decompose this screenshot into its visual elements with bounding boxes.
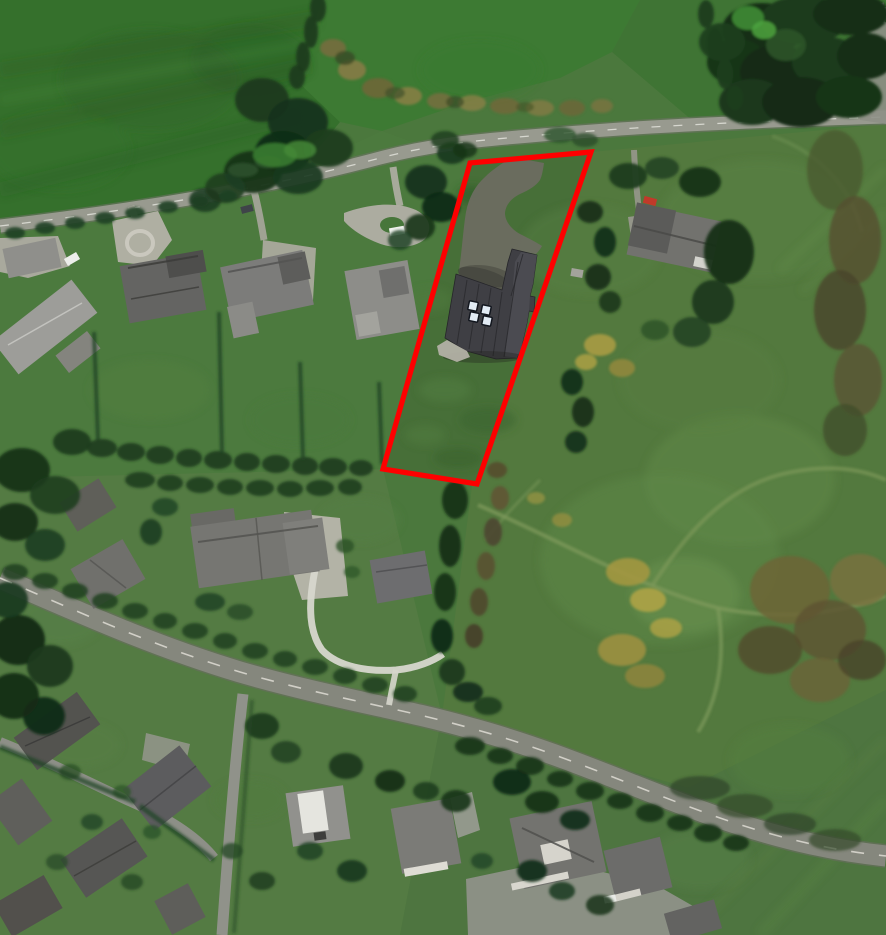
scrub-brown — [490, 98, 520, 114]
hedge-diag-below-site — [442, 481, 468, 519]
trees-road2-south — [493, 769, 531, 795]
hedgerow-below-site — [157, 475, 183, 491]
scrub-dark — [516, 102, 534, 112]
hedge-road2-south — [723, 835, 749, 851]
gorse — [609, 359, 635, 377]
scrub-hedge-west — [491, 486, 509, 510]
scrub-brown — [591, 99, 613, 113]
scrub-dark — [335, 51, 355, 65]
building-flat-white-roof — [297, 790, 328, 833]
hedgerow-mid — [146, 446, 174, 464]
hedge-diag-below-site — [439, 659, 465, 685]
mottle — [420, 40, 540, 100]
trees-road2-south — [525, 791, 559, 813]
bush-house-g — [336, 539, 354, 553]
hedge-road2-north — [242, 643, 268, 659]
hedgerow-mid — [292, 457, 318, 475]
scrub-road-north-se — [670, 776, 730, 800]
hedge-road2-north — [92, 593, 118, 609]
skylight — [482, 316, 493, 327]
trees-suburb — [413, 782, 439, 800]
trees-suburb — [337, 860, 367, 882]
hedge-site-east — [561, 369, 583, 395]
mottle-site — [419, 378, 471, 402]
hedgerow-mid — [117, 443, 145, 461]
hedgerow-mid — [176, 449, 202, 467]
trees-house-f — [195, 593, 225, 611]
hedge-road2-north — [62, 583, 88, 599]
trees-west-edge — [27, 645, 73, 687]
trees-suburb — [517, 860, 547, 882]
hedge-road2-south — [667, 815, 693, 831]
mottle-rough — [645, 415, 835, 545]
satellite-basemap — [0, 0, 886, 935]
trees-house-e — [641, 320, 669, 340]
hedge-road2-north — [182, 623, 208, 639]
hedge-road-top — [125, 207, 145, 219]
hedge-road2-south — [607, 793, 633, 809]
scrub-dark — [446, 96, 464, 108]
scrub-road-north-se — [809, 829, 861, 851]
hedge-road-top — [5, 227, 25, 239]
scrub-brown — [559, 100, 585, 116]
hedge-road2-north — [122, 603, 148, 619]
trees-site-west — [388, 230, 412, 250]
scrub-hedge-west — [477, 552, 495, 580]
hedge-site-east — [599, 291, 621, 313]
building-flat-unit — [314, 831, 327, 841]
trees-suburb — [297, 842, 323, 860]
hedgerow-below-site — [306, 480, 334, 496]
gorse — [606, 558, 650, 586]
house-f-right-wing — [283, 517, 330, 574]
skylight — [469, 312, 480, 323]
hedge-site-east — [585, 264, 611, 290]
house-d-light-wing — [355, 311, 380, 336]
hedgerow-below-site — [186, 477, 214, 493]
hedge-road2-north — [302, 659, 328, 675]
gorse — [552, 513, 572, 527]
hedge-road-top — [95, 212, 115, 224]
trees-house-e — [704, 220, 754, 284]
gorse — [650, 618, 682, 638]
hedge-road-top — [65, 217, 85, 229]
mottle-site — [434, 448, 482, 468]
scrub-band-east — [814, 270, 866, 350]
hedge-site-east — [594, 227, 616, 257]
hedgerow-below-site — [277, 481, 303, 497]
hedgerow-below-site — [125, 472, 155, 488]
house-c-dark-wing — [277, 251, 310, 284]
mottle-site — [405, 425, 445, 445]
bush-suburb — [143, 825, 161, 839]
hedge-road2-south — [487, 748, 513, 764]
trees-house-f — [152, 498, 178, 516]
trees-suburb — [549, 882, 575, 900]
hedge-road2-north — [32, 573, 58, 589]
bush-suburb — [46, 854, 68, 870]
hedge-road2-south — [636, 804, 664, 822]
hedge-road2-north — [2, 564, 28, 580]
hedge-road2-north — [153, 613, 177, 629]
scrub-se — [738, 626, 802, 674]
hedgerow-below-site — [217, 479, 243, 495]
hedge-road2-north — [333, 668, 357, 684]
mottle-se — [730, 725, 850, 795]
hedge-diag-topright — [707, 28, 723, 60]
scrub-road-north-se — [764, 813, 816, 835]
scrub-hedge-west — [465, 624, 483, 648]
trees-house-f — [227, 604, 253, 620]
trees-entrance — [453, 142, 477, 158]
trees-west-mid — [30, 476, 80, 514]
aerial-site-plan — [0, 0, 886, 935]
hedge-site-east — [565, 431, 587, 453]
hedgerow-mid — [262, 455, 290, 473]
hedgerow-mid — [87, 439, 117, 457]
trees-house-e — [673, 317, 711, 347]
trees-house-e — [609, 163, 647, 189]
hedgerow-below-site — [246, 480, 274, 496]
hedge-road2-north — [393, 686, 417, 702]
hedge-road2-south — [547, 771, 573, 787]
scrub-se — [838, 640, 886, 680]
gorse — [527, 492, 545, 504]
hedgerow-mid — [204, 451, 232, 469]
hedge-road-top — [191, 195, 209, 207]
skylight — [481, 305, 492, 316]
hedge-road2-south — [576, 782, 604, 800]
hedge-road-north — [228, 163, 258, 177]
hedgerow-mid — [319, 458, 347, 476]
scrub-hedge-west — [487, 462, 507, 478]
hedge-road2-south — [694, 824, 722, 842]
hedge-top-field — [289, 65, 305, 89]
mottle-suburb — [214, 780, 286, 820]
hedge-diag-topright — [727, 86, 743, 110]
hedge-diag-below-site — [453, 682, 483, 702]
hedge-site-east — [577, 201, 603, 223]
hedgerow-mid — [53, 429, 91, 455]
trees-house-e — [692, 280, 734, 324]
mottle-garden — [90, 360, 210, 420]
trees-house-e — [645, 157, 679, 179]
bush-suburb — [81, 814, 103, 830]
scrub-hedge-west — [484, 518, 502, 546]
hedge-road2-north — [213, 633, 237, 649]
gorse — [598, 634, 646, 666]
gorse — [625, 664, 665, 688]
scrub-dark — [385, 87, 405, 99]
trees-west-mid — [25, 529, 65, 561]
scrub-hedge-west — [470, 588, 488, 616]
trees-west-edge — [23, 697, 65, 735]
skylight — [468, 301, 479, 312]
trees-suburb — [471, 853, 493, 869]
hedge-road-site — [544, 127, 576, 143]
bush-suburb — [121, 874, 143, 890]
trees-suburb — [249, 872, 275, 890]
hedgerow-mid — [349, 460, 373, 476]
trees-suburb — [329, 753, 363, 779]
hedge-road-top — [219, 190, 237, 202]
hedge-diag-topright — [698, 0, 714, 28]
hedge-diag-below-site — [474, 697, 502, 715]
hedge-diag-below-site — [434, 573, 456, 611]
gorse — [630, 588, 666, 612]
trees-suburb — [271, 741, 301, 763]
hedge-diag-below-site — [439, 525, 461, 567]
hedgerow-below-site — [338, 479, 362, 495]
trees-road2-south — [560, 810, 590, 830]
scrub-band-east — [823, 404, 867, 456]
hedge-site-east — [572, 397, 594, 427]
hedge-top-field — [304, 16, 318, 48]
gorse — [575, 354, 597, 370]
hedge-road2-south — [455, 737, 485, 755]
gorse — [584, 334, 616, 356]
forest-topright — [816, 76, 882, 118]
trees-suburb — [586, 895, 614, 915]
trees-house-e — [679, 167, 721, 197]
trees-house-f — [140, 519, 162, 545]
hedge-road-top — [35, 222, 55, 234]
green-bush-road — [284, 141, 316, 159]
hedgerow-mid — [234, 453, 260, 471]
hedge-diag-below-site — [431, 619, 453, 653]
bright-tree-topright — [752, 21, 776, 39]
hedge-diag-topright — [717, 59, 733, 89]
trees-suburb — [375, 770, 405, 792]
bush-house-g — [344, 566, 360, 578]
mottle-site — [460, 407, 516, 433]
hedge-road-site — [572, 133, 598, 147]
house-d-dark-wing — [379, 266, 409, 298]
scrub-road-north-se — [717, 794, 773, 818]
hedge-road-top — [158, 201, 178, 213]
hedge-road2-north — [362, 677, 388, 693]
trees-suburb — [441, 790, 471, 812]
hedge-road2-north — [273, 651, 297, 667]
